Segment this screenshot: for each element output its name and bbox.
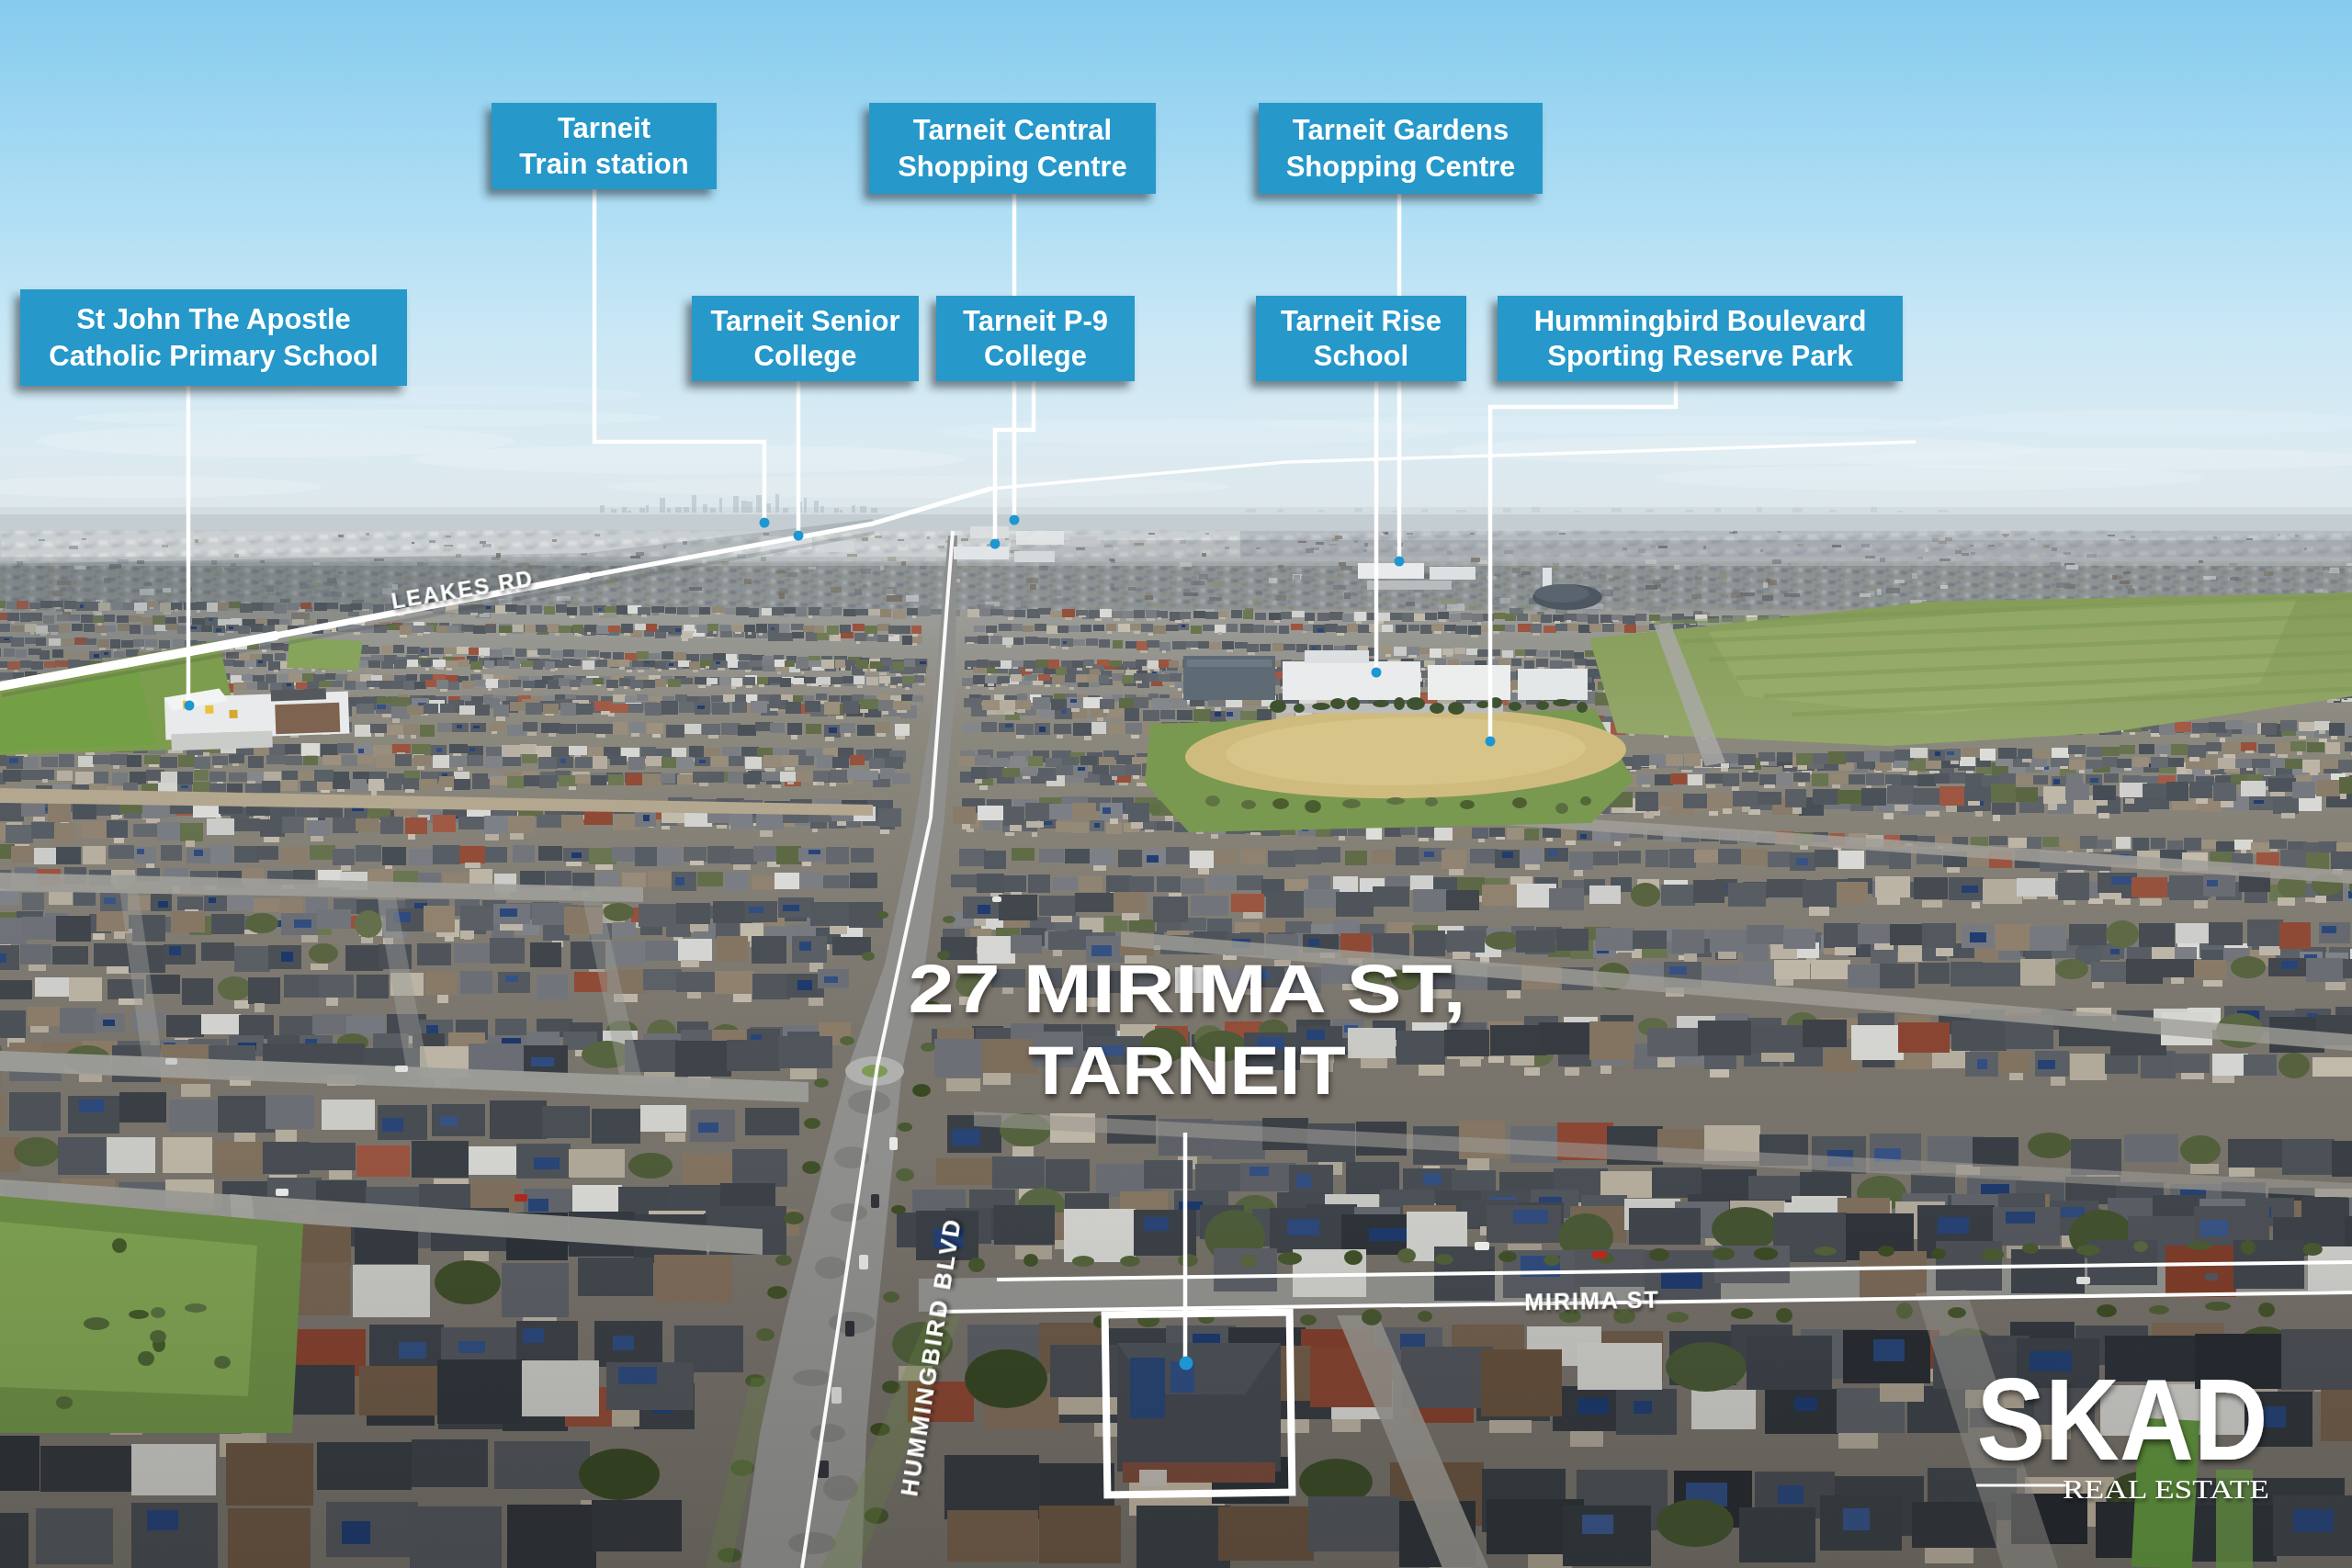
svg-text:27 MIRIMA ST,: 27 MIRIMA ST,	[909, 951, 1466, 1027]
svg-text:Tarneit: Tarneit	[558, 112, 650, 144]
svg-text:St John The Apostle: St John The Apostle	[76, 303, 351, 335]
svg-text:Train station: Train station	[519, 148, 688, 180]
svg-text:Shopping Centre: Shopping Centre	[1286, 151, 1516, 183]
svg-text:TARNEIT: TARNEIT	[1028, 1032, 1346, 1109]
svg-text:MIRIMA ST: MIRIMA ST	[1524, 1286, 1660, 1314]
svg-text:Tarneit Senior: Tarneit Senior	[710, 305, 899, 337]
svg-text:SKAD: SKAD	[1977, 1354, 2268, 1484]
svg-text:College: College	[754, 340, 857, 372]
svg-text:Sporting Reserve Park: Sporting Reserve Park	[1547, 340, 1853, 372]
svg-text:School: School	[1314, 340, 1408, 372]
svg-text:Tarneit Central: Tarneit Central	[913, 114, 1112, 146]
svg-text:Tarneit Rise: Tarneit Rise	[1281, 305, 1442, 337]
svg-text:REAL ESTATE: REAL ESTATE	[2063, 1473, 2269, 1504]
svg-text:Tarneit P-9: Tarneit P-9	[963, 305, 1108, 337]
svg-text:Shopping Centre: Shopping Centre	[898, 151, 1127, 183]
svg-text:Tarneit Gardens: Tarneit Gardens	[1293, 114, 1509, 146]
svg-text:College: College	[984, 340, 1087, 372]
svg-text:Catholic Primary School: Catholic Primary School	[49, 340, 378, 372]
svg-text:Hummingbird Boulevard: Hummingbird Boulevard	[1534, 305, 1867, 337]
